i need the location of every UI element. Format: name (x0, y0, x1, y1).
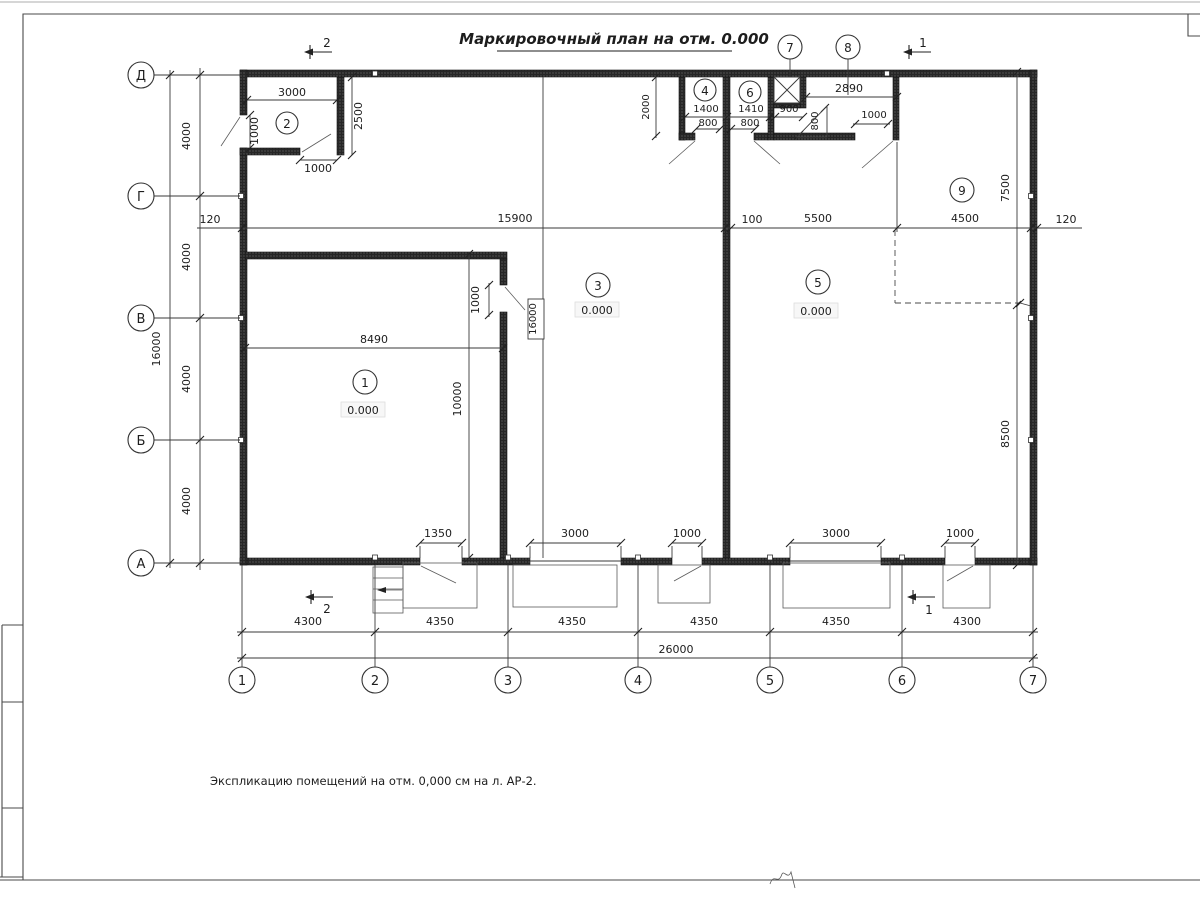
wall-room1-right (500, 259, 507, 285)
dim-bay-6: 4300 (953, 615, 981, 628)
porch (943, 565, 990, 608)
dim-ramp-800: 800 (810, 111, 821, 130)
dim-main-15900: 15900 (498, 212, 533, 225)
walls (240, 70, 1037, 565)
drawing-title: Маркировочный план на отм. 0.000 (459, 30, 769, 48)
dim-room2-width: 3000 (278, 86, 306, 99)
axis-lines (154, 75, 1033, 667)
dim-7500: 7500 (999, 174, 1012, 202)
dim-bay-4: 4350 (690, 615, 718, 628)
axis-row-V: В (137, 312, 146, 327)
dim-room6-width: 1410 (738, 104, 763, 115)
dim-main-4500: 4500 (951, 212, 979, 225)
dim-room1-width: 8490 (360, 333, 388, 346)
room-1-number: 1 (361, 376, 369, 390)
axis-row-B: Б (137, 434, 146, 449)
wall-room1-right (500, 312, 507, 558)
monorail-label: 16000 (528, 299, 544, 339)
dim-gate-3000-right: 3000 (822, 527, 850, 540)
wall-room4-bottom (679, 133, 695, 140)
elevation-labels: 0.000 0.000 0.000 (341, 302, 838, 417)
wall-room2-right (337, 77, 344, 155)
wall-middle (723, 77, 730, 558)
axis-col-6: 6 (898, 674, 906, 689)
wall-left (240, 70, 247, 115)
dim-room1-height: 10000 (451, 382, 464, 417)
room-1-elevation: 0.000 (347, 404, 379, 417)
room-4-number: 4 (701, 84, 709, 98)
axis-col-4: 4 (634, 674, 642, 689)
dim-strip-height: 2000 (641, 94, 652, 119)
dim-8500: 8500 (999, 420, 1012, 448)
axis-col-3: 3 (504, 674, 512, 689)
axis-col-2: 2 (371, 674, 379, 689)
dim-4000-dg: 4000 (180, 122, 193, 150)
section-1-label-bottom: 1 (925, 603, 933, 617)
dim-main-right-120: 120 (1056, 213, 1077, 226)
axis-row-D: Д (136, 69, 146, 84)
room-2-number: 2 (283, 117, 291, 131)
section-2-label-top: 2 (323, 36, 331, 50)
axis-row-G: Г (137, 190, 145, 205)
wall-left (240, 148, 247, 565)
wall-top (240, 70, 1037, 77)
porch (783, 563, 890, 608)
wall-room6-right (768, 77, 774, 140)
wall-shaft-right (800, 77, 806, 108)
room-9-number: 9 (958, 184, 966, 198)
porch (513, 565, 617, 607)
drawing-sheet: 2 1 2 1 Д Г В Б А 1 2 3 4 5 6 7 1 2 3 4 … (0, 0, 1200, 900)
dim-4000-vb: 4000 (180, 365, 193, 393)
wall-bottom (975, 558, 1037, 565)
porches (373, 563, 990, 613)
dim-main-5500: 5500 (804, 212, 832, 225)
room-8-number: 8 (844, 41, 852, 55)
dim-room1-door: 1000 (469, 286, 482, 314)
dim-16000-total: 16000 (150, 332, 163, 367)
annotations: Маркировочный план на отм. 0.000 Эксплик… (210, 30, 769, 788)
monorail-value: 16000 (528, 303, 539, 335)
axis-col-1: 1 (238, 674, 246, 689)
dim-4000-ba: 4000 (180, 487, 193, 515)
section-1-label-top: 1 (919, 36, 927, 50)
dim-room8-door: 1000 (861, 110, 886, 121)
room-5-number: 5 (814, 276, 822, 290)
room-7-number: 7 (786, 41, 794, 55)
wall-bottom (881, 558, 945, 565)
dim-main-left-120: 120 (200, 213, 221, 226)
dim-room2-door-left: 1000 (248, 117, 261, 145)
wall-bottom (462, 558, 530, 565)
dim-room6-door: 800 (740, 118, 759, 129)
floor-plan-svg: 2 1 2 1 Д Г В Б А 1 2 3 4 5 6 7 1 2 3 4 … (0, 0, 1200, 900)
wall-bottom (702, 558, 790, 565)
wall-bottom (621, 558, 672, 565)
dim-bay-3: 4350 (558, 615, 586, 628)
dim-door-1350: 1350 (424, 527, 452, 540)
dim-room8-width: 2890 (835, 82, 863, 95)
wall-bottom (240, 558, 420, 565)
dim-bay-5: 4350 (822, 615, 850, 628)
wall-axis-squares (239, 71, 1034, 560)
door-swings (221, 117, 973, 583)
wall-room6-bottom (754, 133, 768, 140)
dim-door-1000-right: 1000 (946, 527, 974, 540)
wall-stub (893, 77, 899, 140)
porch (658, 565, 710, 603)
dim-shaft-width: 900 (779, 104, 798, 115)
room-3-number: 3 (594, 279, 602, 293)
dim-room2-door-bottom: 1000 (304, 162, 332, 175)
dim-4000-gv: 4000 (180, 243, 193, 271)
room-3-elevation: 0.000 (581, 304, 613, 317)
explication-note: Экспликацию помещений на отм. 0,000 см н… (210, 774, 537, 788)
dim-room2-height: 2500 (352, 102, 365, 130)
stairs-direction-arrow (377, 587, 386, 593)
axis-col-7: 7 (1029, 674, 1037, 689)
room9-boundary (895, 230, 1031, 306)
dimension-ticks (166, 68, 1041, 662)
axis-row-A: А (137, 557, 146, 572)
dim-total-26000: 26000 (659, 643, 694, 656)
dim-main-100: 100 (742, 213, 763, 226)
dim-room4-width: 1400 (693, 104, 718, 115)
wall-room4-left (679, 77, 685, 140)
porch (403, 563, 477, 608)
dim-room4-door: 800 (698, 118, 717, 129)
room-6-number: 6 (746, 86, 754, 100)
axis-col-5: 5 (766, 674, 774, 689)
shaft-symbol (774, 77, 800, 103)
dim-door-1000-left: 1000 (673, 527, 701, 540)
section-2-label-bottom: 2 (323, 602, 331, 616)
dim-bay-1: 4300 (294, 615, 322, 628)
dim-bay-2: 4350 (426, 615, 454, 628)
dim-gate-3000-left: 3000 (561, 527, 589, 540)
axis-circles: Д Г В Б А 1 2 3 4 5 6 7 (128, 62, 1046, 693)
room-5-elevation: 0.000 (800, 305, 832, 318)
wall-room8-bottom (774, 133, 855, 140)
